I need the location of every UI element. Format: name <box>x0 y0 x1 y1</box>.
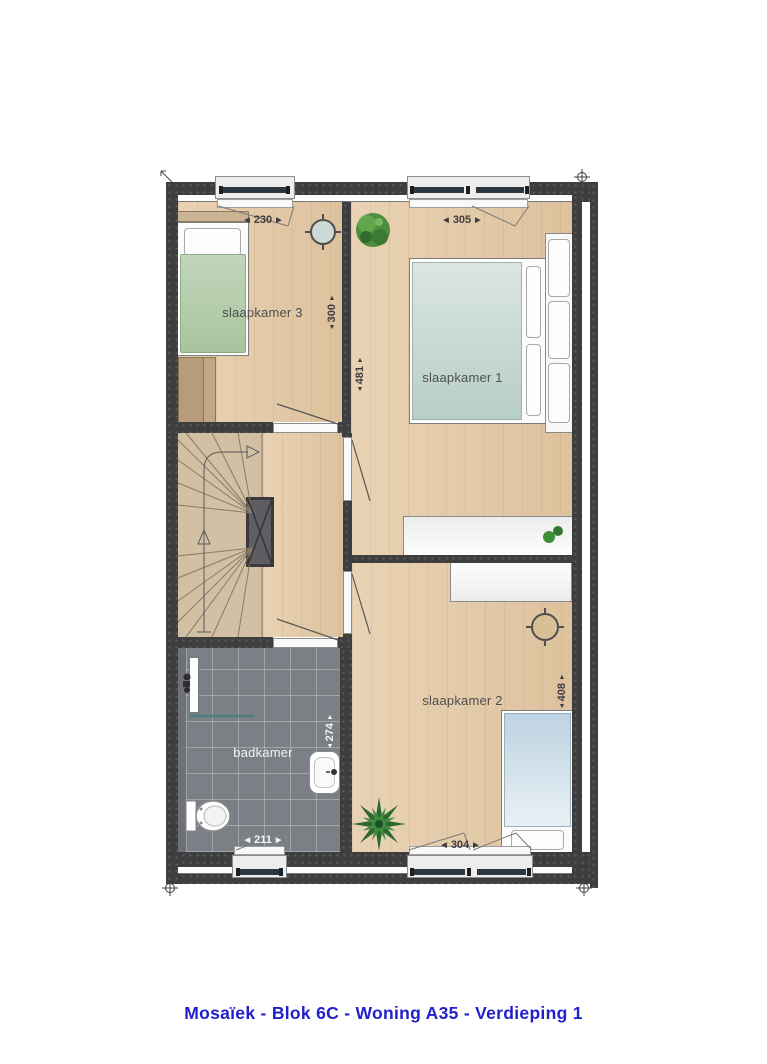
dim-arrow-right: ▶ <box>473 842 478 849</box>
dim-slaapkamer3-depth: ▲ 300 ▼ <box>322 283 342 343</box>
window-hinge <box>410 186 414 194</box>
wall-badkamer-top-jamb <box>338 637 352 648</box>
dim-arrow-down: ▼ <box>329 324 336 331</box>
window-badkamer-glazing <box>239 869 280 875</box>
dim-arrow-left: ◀ <box>244 217 249 224</box>
pillow-s3 <box>184 228 241 256</box>
window-hinge <box>219 186 223 194</box>
wall-divider-s1-s2 <box>352 555 572 563</box>
stair-shaft <box>246 497 274 567</box>
door-slaapkamer3 <box>273 423 338 433</box>
window-hinge <box>527 868 531 876</box>
dim-arrow-down: ▼ <box>357 386 364 393</box>
wardrobe-s1-panel <box>548 363 570 423</box>
window-slaapkamer1-sill <box>409 199 528 208</box>
dim-arrow-up: ▲ <box>329 295 336 302</box>
window-hinge <box>279 868 283 876</box>
floorplan-page: slaapkamer 3 slaapkamer 1 slaapkamer 2 b… <box>0 0 767 1064</box>
window-hinge <box>467 868 471 876</box>
window-slaapkamer1-glazing <box>476 187 524 193</box>
dim-arrow-left: ◀ <box>245 837 250 844</box>
dim-arrow-up: ▲ <box>357 357 364 364</box>
wall-right <box>572 194 582 872</box>
dim-arrow-right: ▶ <box>276 217 281 224</box>
label-slaapkamer1: slaapkamer 1 <box>400 370 525 385</box>
radiator-badkamer <box>189 657 199 713</box>
label-slaapkamer2: slaapkamer 2 <box>400 693 525 708</box>
wall-hall-top <box>166 422 273 433</box>
dim-arrow-down: ▼ <box>327 743 334 750</box>
table-s2 <box>531 613 559 641</box>
plan-title: Mosaïek - Blok 6C - Woning A35 - Verdiep… <box>0 1003 767 1024</box>
wall-badkamer-right <box>340 648 352 854</box>
dim-value: 481 <box>354 366 366 384</box>
floor-hall <box>263 433 343 637</box>
wardrobe-s3-door <box>178 357 204 423</box>
desk-s2 <box>450 562 572 602</box>
pillow-s1 <box>526 266 541 338</box>
window-hinge <box>236 868 240 876</box>
side-table-s3 <box>310 219 336 245</box>
dim-value: 300 <box>326 304 338 322</box>
duvet-s1 <box>412 262 522 420</box>
dim-slaapkamer2-depth: ▲ 408 ▼ <box>552 662 572 722</box>
window-hinge <box>466 186 470 194</box>
wall-hall-top-jamb <box>338 422 351 433</box>
dim-badkamer-width: ◀ 211 ▶ <box>225 834 301 846</box>
dim-slaapkamer1-depth: ▲ 481 ▼ <box>350 345 370 405</box>
dim-value: 408 <box>556 683 568 701</box>
label-slaapkamer3: slaapkamer 3 <box>200 305 325 320</box>
dim-arrow-left: ◀ <box>441 842 446 849</box>
duvet-s2 <box>504 713 571 827</box>
window-slaapkamer1-glazing <box>413 187 464 193</box>
wall-left <box>166 182 178 884</box>
window-slaapkamer2-glazing <box>477 869 526 875</box>
wardrobe-s1-panel <box>548 301 570 359</box>
window-hinge <box>410 868 414 876</box>
dim-slaapkamer1-width: ◀ 305 ▶ <box>424 214 500 226</box>
window-slaapkamer3-sill <box>217 199 293 208</box>
dim-arrow-right: ▶ <box>276 837 281 844</box>
dim-value: 304 <box>451 839 469 851</box>
door-slaapkamer2 <box>343 571 352 634</box>
wall-neighbor-strip <box>590 183 598 888</box>
dim-arrow-left: ◀ <box>443 217 448 224</box>
window-slaapkamer3-glazing <box>222 187 288 193</box>
wall-liner-badkamer <box>178 648 186 852</box>
dim-arrow-up: ▲ <box>327 714 334 721</box>
door-slaapkamer1 <box>343 437 352 501</box>
window-slaapkamer2-glazing <box>413 869 465 875</box>
dim-slaapkamer2-width: ◀ 304 ▶ <box>422 839 498 851</box>
dim-badkamer-depth: ▲ 274 ▼ <box>320 702 340 762</box>
duvet-s3 <box>180 254 246 353</box>
door-badkamer <box>273 638 338 648</box>
desk-s1 <box>403 516 573 556</box>
window-hinge <box>525 186 529 194</box>
dim-value: 274 <box>324 723 336 741</box>
dim-value: 211 <box>254 834 272 846</box>
dim-slaapkamer3-width: ◀ 230 ▶ <box>225 214 301 226</box>
dim-arrow-right: ▶ <box>475 217 480 224</box>
pillow-s1 <box>526 344 541 416</box>
wardrobe-s1-panel <box>548 239 570 297</box>
dim-value: 230 <box>254 214 272 226</box>
dim-arrow-down: ▼ <box>559 703 566 710</box>
wall-hall-right-b <box>343 501 352 571</box>
label-badkamer: badkamer <box>210 745 316 760</box>
wall-badkamer-top <box>166 637 273 648</box>
dim-arrow-up: ▲ <box>559 674 566 681</box>
window-badkamer-sill <box>234 846 285 855</box>
window-hinge <box>286 186 290 194</box>
dim-value: 305 <box>453 214 471 226</box>
